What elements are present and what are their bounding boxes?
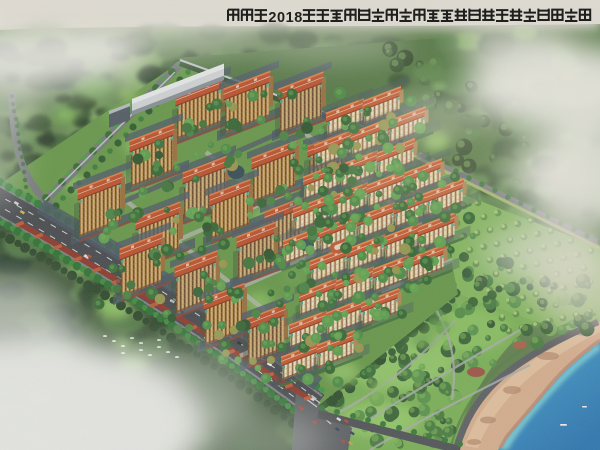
svg-text:1: 1	[286, 10, 294, 26]
svg-text:0: 0	[277, 10, 285, 26]
svg-text:8: 8	[294, 10, 302, 26]
svg-text:2: 2	[268, 10, 276, 26]
